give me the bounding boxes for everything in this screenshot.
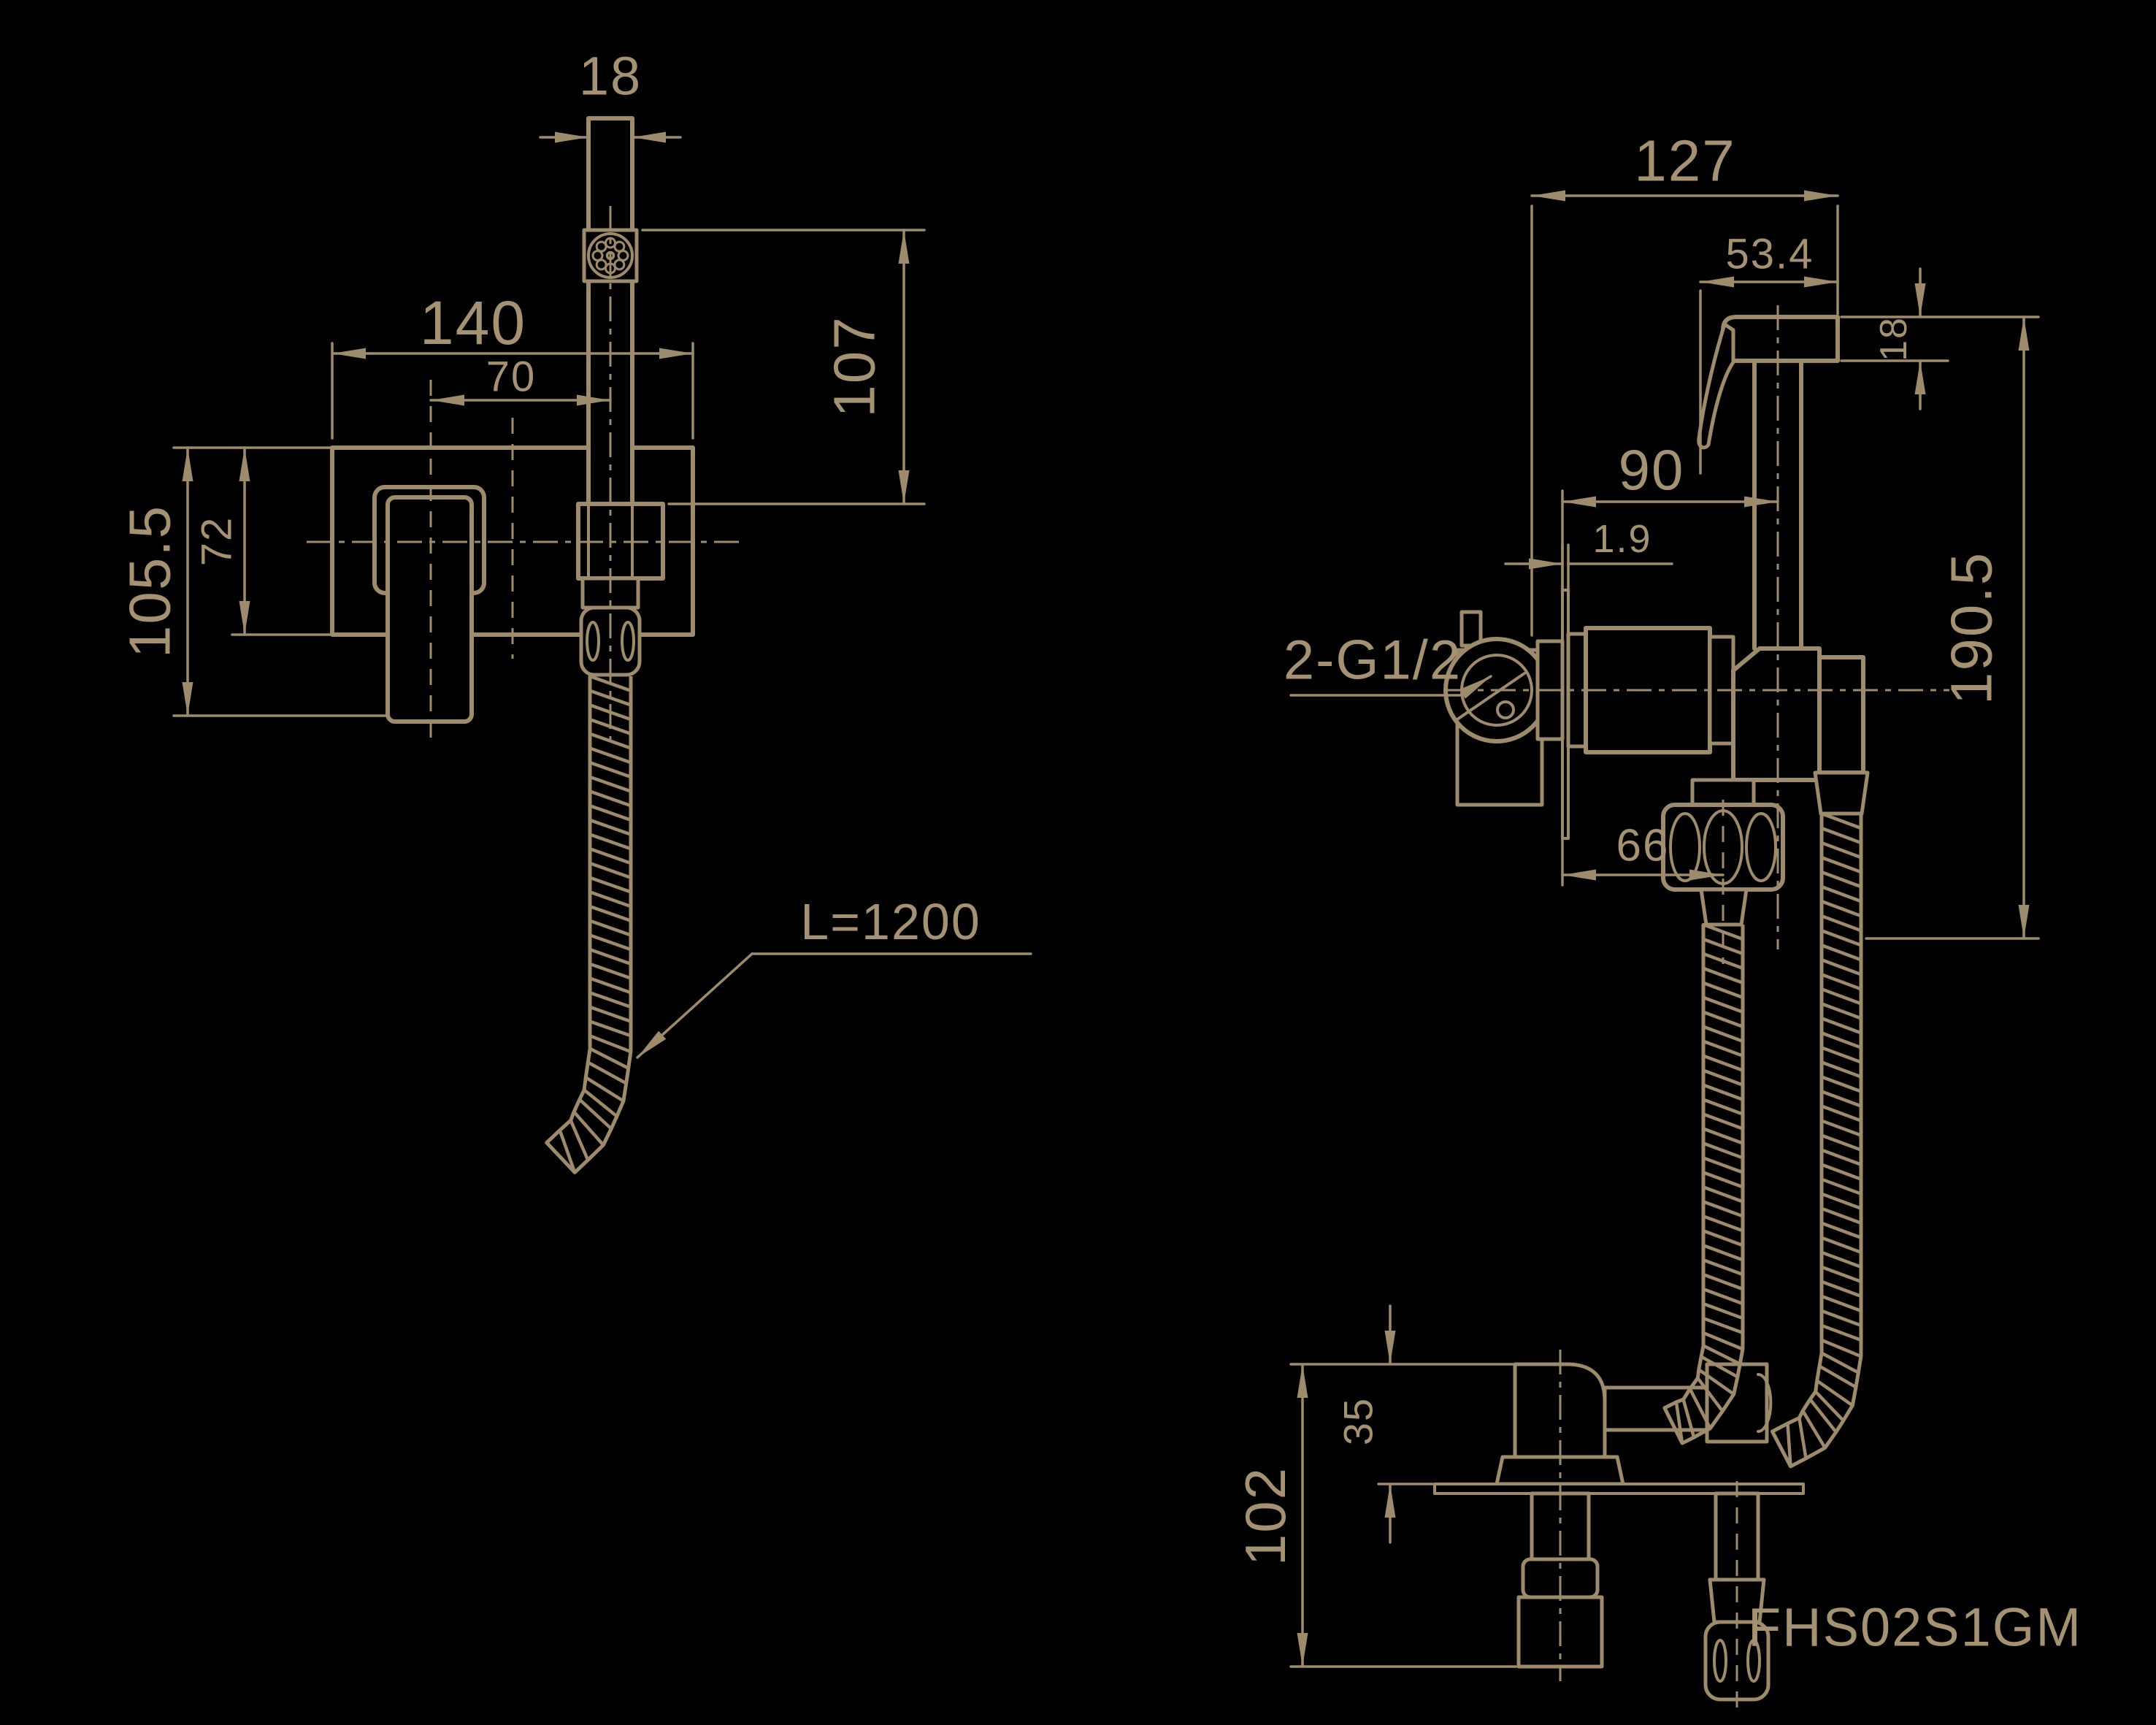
hose-coil-segment xyxy=(1822,1311,1861,1326)
hose-coil-segment xyxy=(590,1036,631,1052)
hose-coil-segment xyxy=(1822,1076,1861,1091)
hose-coil-segment xyxy=(1703,1056,1743,1071)
dim-head-width-label: 18 xyxy=(579,46,642,107)
hose-coil-segment xyxy=(590,777,631,792)
hose-edge xyxy=(547,676,590,1143)
hose-coil-segment xyxy=(1703,1129,1743,1144)
hose-coil-segment xyxy=(590,906,631,921)
dim-handle-offset-label: 70 xyxy=(486,353,537,401)
dim-total-depth-label: 127 xyxy=(1634,129,1735,194)
dimension-arrow xyxy=(1562,497,1596,508)
dimension-arrow xyxy=(332,348,366,359)
dim-hose-offset-label: 66 xyxy=(1616,821,1670,871)
hose-coil-segment xyxy=(1822,1092,1861,1106)
hose-coil-segment xyxy=(1703,954,1743,968)
hose-edge xyxy=(1773,814,1822,1431)
hose-coil-segment xyxy=(1703,1085,1743,1100)
dimension-arrow xyxy=(183,448,193,481)
dim-plate-height-label: 105.5 xyxy=(118,505,183,658)
hose-coil-segment xyxy=(1703,1187,1743,1201)
hose-coil-segment xyxy=(1822,1223,1861,1238)
hose-coil-segment xyxy=(1822,1326,1861,1340)
hose-coil-segment xyxy=(1822,872,1861,887)
hose-coil-segment xyxy=(1703,1071,1743,1085)
hose-coil-segment xyxy=(1703,1100,1743,1114)
dim-spout-height-label: 35 xyxy=(1335,1397,1381,1445)
hose-coil-segment xyxy=(1822,814,1861,828)
hose-length-callout: L=1200 xyxy=(637,893,1031,1057)
dimension-arrow xyxy=(1700,277,1734,288)
hose-coil-segment xyxy=(1822,930,1861,945)
dim-head-height-label: 107 xyxy=(822,315,887,417)
hose-coil-segment xyxy=(1822,828,1861,843)
hose-coil-segment xyxy=(1822,1150,1861,1165)
hose-coil-segment xyxy=(1822,1047,1861,1062)
hose-coil-segment xyxy=(590,835,631,849)
hose-coil-segment xyxy=(1822,843,1861,857)
hose-coil-segment xyxy=(1822,1018,1861,1033)
hose-coil-segment xyxy=(1703,968,1743,983)
dimension-arrow xyxy=(1915,361,1926,394)
hose-coil-segment xyxy=(1822,1209,1861,1223)
hose-coil-segment xyxy=(590,863,631,878)
hose-coil-segment xyxy=(590,748,631,762)
hose-coil-segment xyxy=(590,892,631,906)
hose-coil-segment xyxy=(1822,1003,1861,1018)
dim-flange-thickness: 1.9 xyxy=(1505,517,1672,589)
hose-edge xyxy=(1665,925,1703,1408)
hose-coil-segment xyxy=(1799,1418,1806,1458)
hose-coil-segment xyxy=(1822,857,1861,872)
dimension-arrow xyxy=(2019,905,2030,938)
hose-side-right xyxy=(1772,814,1861,1466)
hose-coil-segment xyxy=(1703,1231,1743,1245)
hose-coil-segment xyxy=(1822,989,1861,1003)
hose-coil-segment xyxy=(590,762,631,777)
dim-bottom-total-label: 102 xyxy=(1233,1466,1297,1566)
hose-coil-segment xyxy=(1703,1012,1743,1027)
dimension-arrow xyxy=(1804,191,1838,202)
holder-block xyxy=(1733,649,1819,780)
dimension-arrow xyxy=(2019,317,2030,351)
hose-coil-segment xyxy=(1703,1304,1743,1318)
hose-coil-segment xyxy=(1822,1282,1861,1296)
hose-front xyxy=(547,676,631,1172)
side-view: 127 53.4 18 90 1.9 xyxy=(1284,129,2038,965)
dimension-arrow xyxy=(1529,559,1562,570)
hose-coil-segment xyxy=(1822,960,1861,974)
dim-inner-height-label: 72 xyxy=(193,516,241,567)
hose-coil-segment xyxy=(590,979,631,993)
port-label: 2-G1/2 xyxy=(1284,630,1462,692)
hose-coil-segment xyxy=(1822,945,1861,960)
hose-coil-segment xyxy=(1703,1216,1743,1231)
hose-coil-segment xyxy=(1822,1340,1861,1356)
dim-flange-thickness-label: 1.9 xyxy=(1592,517,1651,561)
hose-coil-segment xyxy=(1703,1114,1743,1129)
hose-coil-segment xyxy=(1703,1289,1743,1304)
hose-coil-segment xyxy=(1822,1136,1861,1150)
dimension-arrow xyxy=(1915,283,1926,317)
hose-coil-segment xyxy=(1822,1252,1861,1267)
hose-coil-segment xyxy=(1822,974,1861,989)
hose-coil-segment xyxy=(1703,1260,1743,1274)
hose-coil-segment xyxy=(1822,1296,1861,1311)
dim-head-depth-label: 53.4 xyxy=(1726,231,1814,278)
hose-coil-segment xyxy=(1822,901,1861,916)
front-view: 18 140 70 107 105.5 72 xyxy=(118,46,1032,1058)
dimension-arrow xyxy=(239,601,250,635)
outlet-elbow xyxy=(1819,657,1863,773)
dimension-arrow xyxy=(1804,277,1838,288)
hose-coil-segment xyxy=(590,992,631,1007)
handle-lever xyxy=(388,497,472,722)
dim-spout-height: 35 xyxy=(1335,1306,1433,1542)
hose-coil-segment xyxy=(590,935,631,949)
dimension-arrow xyxy=(1297,1633,1308,1667)
dimension-arrow xyxy=(183,682,193,716)
hose-coil-segment xyxy=(1703,1158,1743,1172)
hoses xyxy=(547,676,1861,1466)
hose-coil-segment xyxy=(1703,1143,1743,1158)
hose-coil-segment xyxy=(1703,1333,1743,1349)
hose-coil-segment xyxy=(1703,1318,1743,1333)
dim-body-depth: 90 xyxy=(1562,437,1778,590)
dim-head-thickness: 18 xyxy=(1841,269,2038,409)
hose-coil-segment xyxy=(1703,1274,1743,1289)
dim-head-height: 107 xyxy=(642,230,924,504)
hose-coil-segment xyxy=(1822,916,1861,930)
hose-coil-segment xyxy=(590,849,631,863)
hose-coil-segment xyxy=(1822,1033,1861,1047)
dimension-arrow xyxy=(1385,1484,1396,1518)
hose-coil-segment xyxy=(1822,1062,1861,1076)
hose-coil-segment xyxy=(590,820,631,835)
hose-coil-segment xyxy=(590,792,631,806)
hose-coil-segment xyxy=(590,878,631,892)
hose-coil-segment xyxy=(1703,1041,1743,1056)
dim-handle-offset: 70 xyxy=(431,353,610,401)
hose-coil-segment xyxy=(1703,1245,1743,1260)
dimension-arrow xyxy=(239,448,250,481)
dim-head-thickness-label: 18 xyxy=(1873,316,1915,362)
sprayer-head-side xyxy=(1723,317,1838,361)
hose-coil-segment xyxy=(1822,1106,1861,1121)
hose-coil-segment xyxy=(590,949,631,964)
dimension-arrow xyxy=(899,470,910,504)
hose-coil-segment xyxy=(1703,998,1743,1012)
hose-coil-segment xyxy=(590,921,631,936)
hose-coil-segment xyxy=(590,1022,631,1036)
hose-coil-segment xyxy=(1822,887,1861,901)
dim-body-depth-label: 90 xyxy=(1619,437,1685,502)
dim-total-height-side-label: 190.5 xyxy=(1939,551,2004,705)
hose-coil-segment xyxy=(1703,1201,1743,1216)
dimension-arrow xyxy=(1297,1364,1308,1398)
hose-coil-segment xyxy=(590,964,631,979)
dimension-arrow xyxy=(1385,1331,1396,1364)
dimension-arrow xyxy=(899,230,910,264)
hose-coil-segment xyxy=(1703,1172,1743,1187)
dim-total-height-side: 190.5 xyxy=(1866,317,2038,938)
hose-coil-segment xyxy=(590,1007,631,1022)
hose-coil-segment xyxy=(1703,1027,1743,1041)
dimension-arrow xyxy=(555,132,588,143)
model-code: FHS02S1GM xyxy=(1748,1597,2082,1658)
hose-coil-segment xyxy=(1822,1267,1861,1282)
trigger-lever xyxy=(1699,324,1733,448)
dim-plate-height: 105.5 72 xyxy=(118,448,388,716)
hose-coil-segment xyxy=(1822,1238,1861,1252)
dimension-arrow xyxy=(659,348,693,359)
technical-drawing: 18 140 70 107 105.5 72 xyxy=(0,0,2156,1725)
port-callout: 2-G1/2 xyxy=(1284,630,1491,696)
hose-coil-segment xyxy=(1822,1165,1861,1179)
dimension-arrow xyxy=(431,395,464,406)
dimension-arrow xyxy=(1532,191,1565,202)
outlet-nut xyxy=(1815,773,1868,814)
hose-coil-segment xyxy=(1822,1194,1861,1209)
hose-length-label: L=1200 xyxy=(800,893,981,950)
dimension-arrow xyxy=(632,132,666,143)
hose-coil-segment xyxy=(590,806,631,820)
hose-coil-segment xyxy=(1703,983,1743,998)
hose-coil-segment xyxy=(1822,1121,1861,1136)
hose-coil-segment xyxy=(590,734,631,749)
hose-coil-segment xyxy=(1817,1381,1853,1406)
dim-plate-width-label: 140 xyxy=(420,288,526,357)
hose-coil-segment xyxy=(1822,1179,1861,1194)
dimension-arrow xyxy=(1562,870,1596,881)
